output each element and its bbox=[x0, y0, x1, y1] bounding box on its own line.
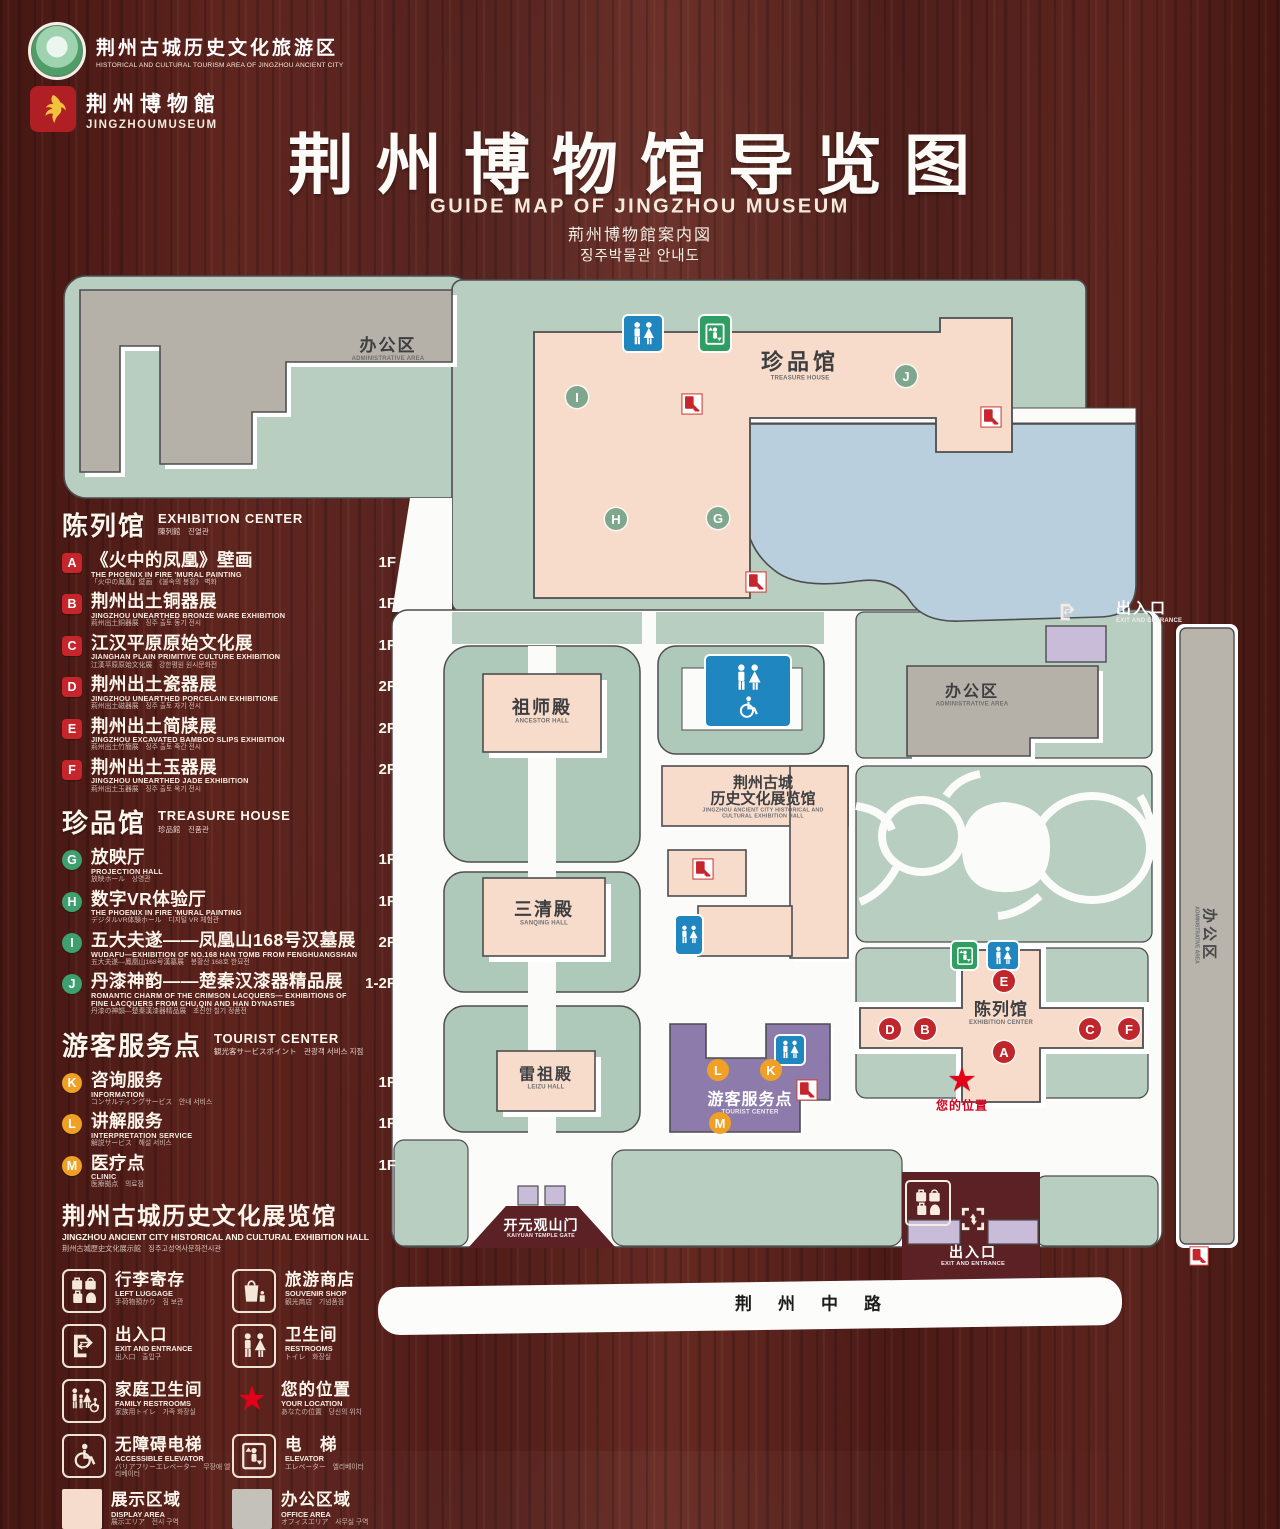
map-marker-L: L bbox=[707, 1059, 729, 1081]
legend-marker-M: M bbox=[62, 1156, 82, 1176]
facility-office-area: 办公区域 OFFICE AREA オフィスエリア 사무실 구역 bbox=[232, 1489, 396, 1529]
legend-section-header: 游客服务点 TOURIST CENTER 観光客サービスポイント 관광객 서비스… bbox=[62, 1026, 396, 1063]
legend-marker-D: D bbox=[62, 677, 82, 697]
facility-souvenir-shop: 旅游商店 SOUVENIR SHOP 観光商店 기념품점 bbox=[232, 1269, 396, 1313]
facility-restrooms: 卫生间 RESTROOMS トイレ 화장실 bbox=[232, 1324, 396, 1368]
your-location-label: 您的位置 bbox=[936, 1097, 988, 1114]
facility-legend-grid: 行李寄存 LEFT LUGGAGE 手荷物預かり 짐 보관 旅游商店 SOUVE… bbox=[62, 1269, 396, 1529]
legend-floor-C: 1F bbox=[378, 634, 396, 669]
west-path bbox=[392, 498, 452, 612]
legend-section-tourist-center: 游客服务点 TOURIST CENTER 観光客サービスポイント 관광객 서비스… bbox=[62, 1026, 396, 1189]
exit-top-icon bbox=[1056, 600, 1080, 624]
restroom-block-sign bbox=[706, 656, 790, 726]
restroom-sign-history-hall bbox=[676, 916, 702, 954]
legend-item-C: C 江汉平原原始文化展 JIANGHAN PLAIN PRIMITIVE CUL… bbox=[62, 634, 396, 669]
facility-exit-entrance: 出入口 EXIT AND ENTRANCE 出入口 출입구 bbox=[62, 1324, 232, 1368]
north-gate-building bbox=[1046, 626, 1106, 662]
souvenir-shop-icon bbox=[232, 1269, 276, 1313]
legend-item-J: J 丹漆神韵——楚秦汉漆器精品展 ROMANTIC CHARM OF THE C… bbox=[62, 972, 396, 1016]
garden-pond bbox=[962, 802, 1050, 892]
restrooms-icon bbox=[232, 1324, 276, 1368]
legend-section-exhibition-center: 陈列馆 EXHIBITION CENTER 陳列館 진열관 A 《火中的凤凰》壁… bbox=[62, 506, 396, 793]
label-sanqing-hall: 三清殿 SANQING HALL bbox=[514, 901, 574, 928]
map-marker-F: F bbox=[1118, 1018, 1140, 1040]
facility-left-luggage: 行李寄存 LEFT LUGGAGE 手荷物預かり 짐 보관 bbox=[62, 1269, 232, 1313]
kaiyuan-gate-pillar-2 bbox=[545, 1186, 565, 1205]
label-leizu-hall: 雷祖殿 LEIZU HALL bbox=[519, 1067, 573, 1092]
legend-floor-F: 2F bbox=[378, 758, 396, 793]
legend-floor-M: 1F bbox=[378, 1154, 396, 1189]
label-admin-top: 办公区 ADMINISTRATIVE AREA bbox=[352, 337, 425, 363]
legend-marker-I: I bbox=[62, 933, 82, 953]
your-location-icon: ★ bbox=[232, 1379, 272, 1419]
map-marker-C: C bbox=[1079, 1018, 1101, 1040]
legend-floor-L: 1F bbox=[378, 1112, 396, 1147]
emergency-sign-2 bbox=[745, 571, 767, 593]
legend-section-title-zh: 珍品馆 bbox=[62, 803, 146, 840]
legend-sections: 陈列馆 EXHIBITION CENTER 陳列館 진열관 A 《火中的凤凰》壁… bbox=[62, 506, 396, 1189]
legend-item-G: G 放映厅 PROJECTION HALL 放映ホール 상영관 1F bbox=[62, 848, 396, 883]
legend-item-A: A 《火中的凤凰》壁画 THE PHOENIX IN FIRE 'MURAL P… bbox=[62, 551, 396, 586]
facility-family-restrooms: 家庭卫生间 FAMILY RESTROOMS 家族用トイレ 가족 화장실 bbox=[62, 1379, 232, 1423]
label-exit-bottom: 出入口 EXIT AND ENTRANCE bbox=[941, 1245, 1005, 1267]
restroom-sign-tourist-center bbox=[776, 1036, 804, 1064]
south-gate-building-2 bbox=[988, 1220, 1038, 1244]
south-lawn-3 bbox=[1036, 1176, 1158, 1246]
south-lawn-1 bbox=[394, 1140, 468, 1246]
legend-floor-D: 2F bbox=[378, 675, 396, 710]
emergency-sign-6 bbox=[1189, 1246, 1209, 1266]
map-marker-H: H bbox=[605, 508, 627, 530]
legend-section-title-en: EXHIBITION CENTER bbox=[158, 511, 303, 527]
lawn-strip-1 bbox=[452, 612, 642, 644]
legend-item-B: B 荆州出土铜器展 JINGZHOU UNEARTHED BRONZE WARE… bbox=[62, 592, 396, 627]
legend-section-title-en: TREASURE HOUSE bbox=[158, 808, 291, 824]
left-luggage-icon bbox=[62, 1269, 106, 1313]
restroom-sign-exhibition bbox=[988, 942, 1018, 969]
emergency-sign-3 bbox=[980, 406, 1002, 428]
legend-section-header: 珍品馆 TREASURE HOUSE 珍品館 진품관 bbox=[62, 803, 396, 840]
map-marker-M: M bbox=[709, 1112, 731, 1134]
map-marker-I: I bbox=[566, 386, 588, 408]
legend-marker-G: G bbox=[62, 850, 82, 870]
map-marker-K: K bbox=[760, 1059, 782, 1081]
elevator-sign-treasure bbox=[700, 316, 730, 351]
legend-section-title-zh: 游客服务点 bbox=[62, 1026, 202, 1063]
legend-item-K: K 咨询服务 INFORMATION コンサルティングサービス 안내 서비스 1… bbox=[62, 1071, 396, 1106]
office-area-swatch bbox=[232, 1489, 272, 1529]
phoenix-icon bbox=[36, 92, 70, 126]
tourism-area-logo-block: 荆州古城历史文化旅游区 HISTORICAL AND CULTURAL TOUR… bbox=[28, 22, 343, 80]
legend-item-M: M 医疗点 CLINIC 医療拠点 의료점 1F bbox=[62, 1154, 396, 1189]
elevator-icon bbox=[232, 1434, 276, 1478]
map-marker-A: A bbox=[993, 1041, 1015, 1063]
facility-your-location: ★ 您的位置 YOUR LOCATION あなたの位置 당신의 위치 bbox=[232, 1379, 396, 1423]
label-exhibition-center: 陈列馆 EXHIBITION CENTER bbox=[969, 1001, 1033, 1027]
legend-section-subtitle: 珍品館 진품관 bbox=[158, 825, 291, 834]
history-hall-legend-title: 荆州古城历史文化展览馆 JINGZHOU ANCIENT CITY HISTOR… bbox=[62, 1203, 396, 1253]
tourism-area-name: 荆州古城历史文化旅游区 bbox=[96, 33, 343, 60]
legend-item-E: E 荆州出土简牍展 JINGZHOU EXCAVATED BAMBOO SLIP… bbox=[62, 717, 396, 752]
emergency-sign-1 bbox=[681, 393, 703, 415]
road-label: 荆州中路 bbox=[709, 1290, 907, 1315]
legend-floor-K: 1F bbox=[378, 1071, 396, 1106]
legend-marker-E: E bbox=[62, 719, 82, 739]
tourism-area-logo bbox=[28, 22, 86, 80]
facility-elevator: 电 梯 ELEVATOR エレベーター 엘리베이터 bbox=[232, 1434, 396, 1478]
legend-floor-E: 2F bbox=[378, 717, 396, 752]
legend-item-F: F 荆州出土玉器展 JINGZHOU UNEARTHED JADE EXHIBI… bbox=[62, 758, 396, 793]
page-title: 荆州博物馆导览图 bbox=[288, 112, 992, 208]
label-ancestor-hall: 祖师殿 ANCESTOR HALL bbox=[512, 699, 572, 726]
legend-item-I: I 五大夫遂——凤凰山168号汉墓展 WUDAFU—EXHIBITION OF … bbox=[62, 931, 396, 966]
museum-name-en: JINGZHOUMUSEUM bbox=[86, 119, 221, 131]
accessible-elevator-icon bbox=[62, 1434, 106, 1478]
exit-entrance-icon bbox=[62, 1324, 106, 1368]
label-history-hall: 荆州古城 历史文化展览馆 JINGZHOU ANCIENT CITY HISTO… bbox=[698, 775, 828, 820]
map-marker-J: J bbox=[895, 365, 917, 387]
your-location-star: ★ bbox=[947, 1063, 977, 1097]
legend-floor-B: 1F bbox=[378, 592, 396, 627]
tourism-area-name-en: HISTORICAL AND CULTURAL TOURISM AREA OF … bbox=[96, 62, 343, 69]
facility-display-area: 展示区域 DISPLAY AREA 展示エリア 전시 구역 bbox=[62, 1489, 232, 1529]
label-exit-top: 出入口 EXIT AND ENTRANCE bbox=[1116, 601, 1182, 625]
legend-marker-A: A bbox=[62, 553, 82, 573]
legend-section-title-en: TOURIST CENTER bbox=[214, 1031, 363, 1047]
map-marker-D: D bbox=[879, 1018, 901, 1040]
map-marker-G: G bbox=[707, 507, 729, 529]
legend-item-H: H 数字VR体验厅 THE PHOENIX IN FIRE 'MURAL PAI… bbox=[62, 890, 396, 925]
legend-floor-A: 1F bbox=[378, 551, 396, 586]
legend-floor-J: 1-2F bbox=[365, 972, 396, 1016]
legend-section-subtitle: 観光客サービスポイント 관광객 서비스 지점 bbox=[214, 1047, 363, 1056]
legend-marker-L: L bbox=[62, 1114, 82, 1134]
legend-item-L: L 讲解服务 INTERPRETATION SERVICE 解説サービス 해설 … bbox=[62, 1112, 396, 1147]
page-title-ko: 징주박물관 안내도 bbox=[580, 245, 700, 266]
left-luggage-sign bbox=[905, 1180, 951, 1226]
facility-accessible-elevator: 无障碍电梯 ACCESSIBLE ELEVATOR バリアフリーエレベーター 무… bbox=[62, 1434, 232, 1478]
restroom-sign-treasure bbox=[624, 316, 662, 351]
legend-marker-K: K bbox=[62, 1073, 82, 1093]
legend-section-subtitle: 陳列館 진열관 bbox=[158, 527, 303, 536]
map-marker-E: E bbox=[993, 970, 1015, 992]
museum-name: 荆州博物館 bbox=[86, 88, 221, 118]
legend-panel: 陈列馆 EXHIBITION CENTER 陳列館 진열관 A 《火中的凤凰》壁… bbox=[62, 496, 396, 1529]
legend-floor-H: 1F bbox=[378, 890, 396, 925]
legend-marker-H: H bbox=[62, 892, 82, 912]
emergency-sign-4 bbox=[692, 858, 714, 880]
kaiyuan-gate-pillar-1 bbox=[518, 1186, 538, 1205]
emergency-sign-5 bbox=[796, 1078, 818, 1102]
page-title-en: GUIDE MAP OF JINGZHOU MUSEUM bbox=[430, 196, 850, 219]
legend-section-treasure-house: 珍品馆 TREASURE HOUSE 珍品館 진품관 G 放映厅 PROJECT… bbox=[62, 803, 396, 1016]
map-marker-B: B bbox=[914, 1018, 936, 1040]
label-kaiyuan-gate: 开元观山门 KAIYUAN TEMPLE GATE bbox=[504, 1218, 579, 1240]
display-area-swatch bbox=[62, 1489, 102, 1529]
page-title-ja: 荊州博物館案内図 bbox=[568, 221, 712, 245]
label-admin-right: 办公区 ADMINISTRATIVE AREA bbox=[936, 684, 1009, 709]
museum-logo-block: 荆州博物館 JINGZHOUMUSEUM bbox=[30, 86, 221, 132]
legend-floor-I: 2F bbox=[378, 931, 396, 966]
label-admin-strip: 办公区 ADMINISTRATIVE AREA bbox=[1194, 906, 1221, 964]
legend-marker-C: C bbox=[62, 636, 82, 656]
museum-logo bbox=[30, 86, 76, 132]
elevator-sign-exhibition bbox=[952, 942, 977, 969]
legend-section-title-zh: 陈列馆 bbox=[62, 506, 146, 543]
legend-item-D: D 荆州出土瓷器展 JINGZHOU UNEARTHED PORCELAIN E… bbox=[62, 675, 396, 710]
label-treasure-house: 珍品馆 TREASURE HOUSE bbox=[761, 350, 839, 381]
lawn-strip-2 bbox=[656, 612, 824, 644]
south-lawn-2 bbox=[612, 1150, 902, 1246]
legend-section-header: 陈列馆 EXHIBITION CENTER 陳列館 진열관 bbox=[62, 506, 396, 543]
legend-marker-F: F bbox=[62, 760, 82, 780]
legend-marker-J: J bbox=[62, 974, 82, 994]
legend-floor-G: 1F bbox=[378, 848, 396, 883]
family-restrooms-icon bbox=[62, 1379, 106, 1423]
legend-marker-B: B bbox=[62, 594, 82, 614]
updown-gate-icon bbox=[958, 1204, 988, 1234]
